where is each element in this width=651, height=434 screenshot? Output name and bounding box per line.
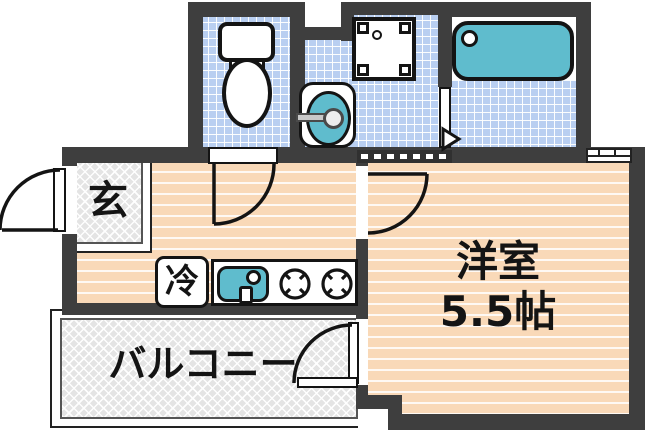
entrance-door-leaf bbox=[53, 168, 66, 232]
wall-west-right bbox=[629, 147, 645, 430]
wall-west-bottom bbox=[388, 414, 645, 430]
wall-notch-v bbox=[388, 395, 402, 430]
balcony-label: バルコニー bbox=[108, 345, 297, 383]
balcony-door-leaf-open bbox=[297, 377, 358, 388]
refrigerator-label: 冷 bbox=[165, 265, 199, 299]
washing-machine-corner bbox=[357, 22, 369, 34]
window-tick bbox=[614, 150, 616, 156]
sink-faucet-knob bbox=[246, 270, 261, 285]
window-midline bbox=[588, 155, 630, 157]
entrance-door-arc bbox=[0, 170, 60, 230]
toilet-door-leaf bbox=[208, 147, 278, 164]
washbasin-faucet-knob bbox=[323, 108, 344, 129]
bathroom-floor bbox=[450, 80, 578, 150]
western-room-area-label: 5.5帖 bbox=[440, 291, 556, 333]
wall-washroom-step-h bbox=[290, 27, 354, 40]
balcony-door-leaf bbox=[348, 322, 359, 384]
entrance-label: 玄 bbox=[88, 181, 128, 221]
toilet-icon-bowl bbox=[222, 58, 272, 128]
washing-machine-corner bbox=[399, 64, 411, 76]
floorplan: 冷 玄 洋室 5.5帖 バルコニー bbox=[0, 0, 651, 434]
wall-bathroom-right bbox=[576, 2, 591, 163]
washing-machine-corner bbox=[357, 64, 369, 76]
wall-bathroom-left bbox=[438, 15, 452, 87]
refrigerator-icon: 冷 bbox=[155, 256, 209, 308]
threshold-dashes bbox=[361, 154, 448, 159]
wall-bathroom-top bbox=[438, 2, 591, 17]
washroom-entry-threshold bbox=[357, 150, 452, 163]
window-icon bbox=[586, 148, 632, 163]
wall-washroom-top bbox=[341, 2, 444, 15]
window-tick bbox=[598, 150, 600, 156]
wall-toilet-left bbox=[188, 2, 203, 163]
bathtub-drain bbox=[461, 30, 478, 47]
washing-machine-icon bbox=[352, 17, 416, 81]
washing-machine-knob bbox=[372, 30, 382, 40]
bathroom-folding-door-leaf bbox=[439, 87, 451, 148]
toilet-icon-tank bbox=[218, 22, 275, 62]
western-door-opening bbox=[356, 166, 368, 239]
western-room-label: 洋室 bbox=[456, 241, 540, 283]
wall-toilet-top bbox=[188, 2, 305, 17]
sink-faucet-stem bbox=[239, 286, 253, 304]
washing-machine-corner bbox=[399, 22, 411, 34]
